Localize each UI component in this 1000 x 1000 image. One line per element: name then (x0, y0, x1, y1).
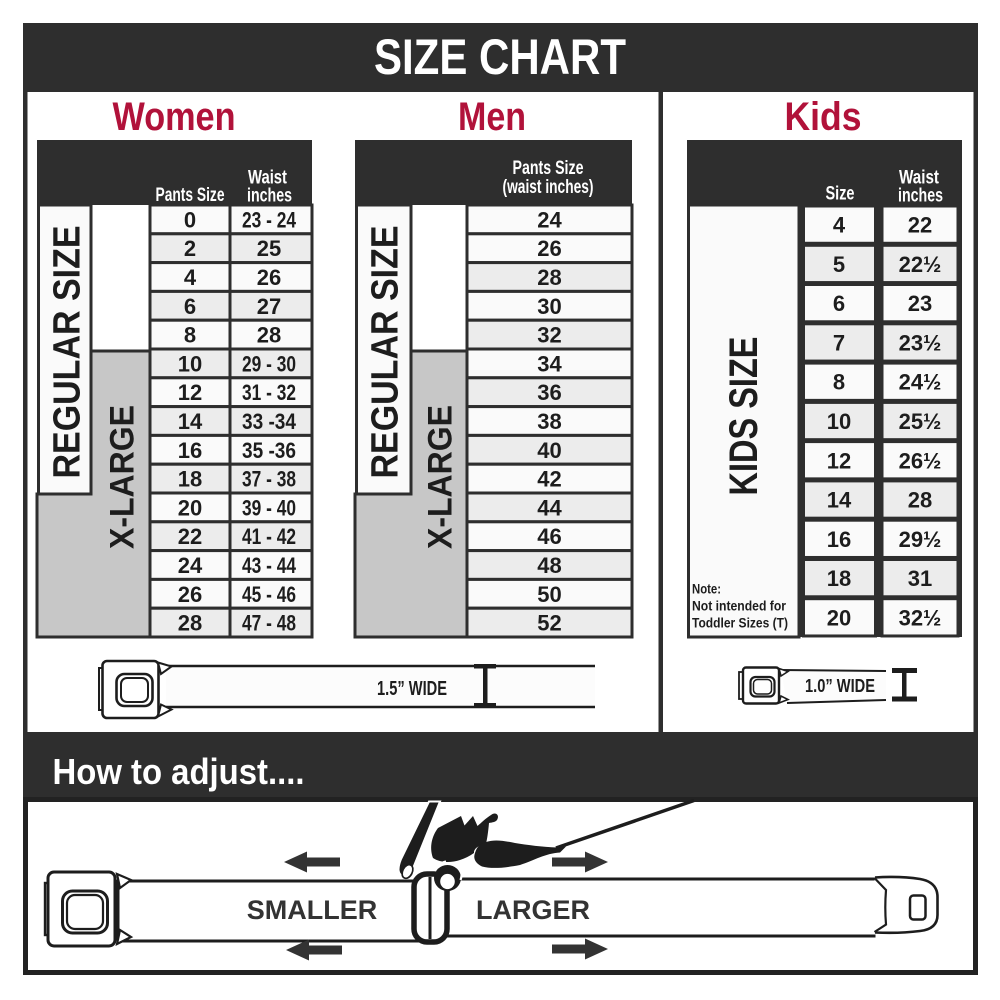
svg-text:Kids: Kids (785, 95, 862, 139)
svg-text:SIZE CHART: SIZE CHART (374, 29, 626, 85)
svg-text:X-LARGE: X-LARGE (422, 405, 460, 549)
svg-text:31 - 32: 31 - 32 (242, 380, 296, 405)
svg-text:Not intended for: Not intended for (692, 598, 786, 614)
svg-text:8: 8 (184, 323, 196, 348)
svg-text:Size: Size (826, 183, 855, 205)
svg-text:14: 14 (827, 488, 852, 513)
svg-text:26: 26 (257, 265, 281, 290)
svg-text:32: 32 (537, 323, 561, 348)
svg-text:28: 28 (178, 611, 202, 636)
svg-text:4: 4 (184, 265, 197, 290)
svg-text:14: 14 (178, 409, 203, 434)
svg-text:25: 25 (257, 236, 281, 261)
svg-text:22: 22 (908, 213, 932, 238)
svg-text:29 - 30: 29 - 30 (242, 351, 296, 376)
svg-text:24: 24 (537, 207, 562, 232)
svg-text:33 -34: 33 -34 (242, 409, 297, 434)
svg-text:22½: 22½ (899, 252, 942, 277)
svg-text:52: 52 (537, 611, 561, 636)
svg-text:SMALLER: SMALLER (247, 895, 378, 925)
svg-text:40: 40 (537, 438, 561, 463)
svg-text:16: 16 (178, 438, 202, 463)
svg-text:44: 44 (537, 495, 562, 520)
svg-text:39 - 40: 39 - 40 (242, 495, 296, 520)
svg-text:12: 12 (827, 448, 851, 473)
svg-text:22: 22 (178, 524, 202, 549)
svg-text:8: 8 (833, 370, 845, 395)
svg-text:45 - 46: 45 - 46 (242, 582, 296, 607)
svg-text:1.5” WIDE: 1.5” WIDE (377, 678, 447, 700)
svg-text:7: 7 (833, 330, 845, 355)
svg-text:41 - 42: 41 - 42 (242, 524, 296, 549)
svg-text:REGULAR SIZE: REGULAR SIZE (365, 226, 407, 479)
svg-text:Toddler Sizes (T): Toddler Sizes (T) (692, 615, 788, 631)
svg-text:35 -36: 35 -36 (242, 438, 296, 463)
svg-text:23½: 23½ (899, 330, 942, 355)
svg-text:36: 36 (537, 380, 561, 405)
svg-text:inches: inches (898, 185, 943, 207)
svg-text:32½: 32½ (899, 605, 942, 630)
svg-text:47 - 48: 47 - 48 (242, 611, 296, 636)
svg-text:5: 5 (833, 252, 845, 277)
svg-text:28: 28 (537, 265, 561, 290)
svg-text:29½: 29½ (899, 527, 942, 552)
svg-text:42: 42 (537, 467, 561, 492)
svg-text:LARGER: LARGER (476, 895, 590, 925)
svg-text:24½: 24½ (899, 370, 942, 395)
svg-text:How to adjust....: How to adjust.... (53, 751, 305, 792)
svg-text:Note:: Note: (692, 581, 721, 597)
svg-text:KIDS SIZE: KIDS SIZE (722, 337, 766, 496)
svg-text:50: 50 (537, 582, 561, 607)
svg-text:46: 46 (537, 524, 561, 549)
svg-text:6: 6 (184, 294, 196, 319)
svg-text:30: 30 (537, 294, 561, 319)
svg-text:4: 4 (833, 213, 846, 238)
svg-text:X-LARGE: X-LARGE (104, 405, 142, 549)
svg-text:23 - 24: 23 - 24 (242, 207, 297, 232)
svg-text:37 - 38: 37 - 38 (242, 467, 296, 492)
svg-text:20: 20 (827, 605, 851, 630)
svg-text:34: 34 (537, 351, 562, 376)
svg-text:10: 10 (178, 351, 202, 376)
svg-text:Pants Size: Pants Size (156, 184, 225, 206)
svg-text:27: 27 (257, 294, 281, 319)
svg-text:25½: 25½ (899, 409, 942, 434)
svg-text:16: 16 (827, 527, 851, 552)
svg-text:0: 0 (184, 207, 196, 232)
svg-text:28: 28 (257, 323, 281, 348)
svg-text:Men: Men (458, 95, 526, 139)
svg-text:1.0” WIDE: 1.0” WIDE (805, 676, 875, 696)
svg-text:20: 20 (178, 495, 202, 520)
svg-text:inches: inches (247, 185, 292, 207)
svg-text:REGULAR SIZE: REGULAR SIZE (47, 226, 89, 479)
svg-text:18: 18 (827, 566, 851, 591)
svg-text:2: 2 (184, 236, 196, 261)
svg-text:28: 28 (908, 488, 932, 513)
svg-text:(waist inches): (waist inches) (503, 176, 594, 198)
svg-text:43 - 44: 43 - 44 (242, 553, 297, 578)
svg-text:48: 48 (537, 553, 561, 578)
svg-text:Women: Women (113, 95, 236, 139)
svg-text:23: 23 (908, 291, 932, 316)
svg-text:26½: 26½ (899, 448, 942, 473)
svg-text:12: 12 (178, 380, 202, 405)
svg-text:24: 24 (178, 553, 203, 578)
svg-text:38: 38 (537, 409, 561, 434)
svg-text:26: 26 (537, 236, 561, 261)
svg-text:26: 26 (178, 582, 202, 607)
svg-text:6: 6 (833, 291, 845, 316)
svg-text:10: 10 (827, 409, 851, 434)
svg-text:31: 31 (908, 566, 932, 591)
svg-text:18: 18 (178, 467, 202, 492)
